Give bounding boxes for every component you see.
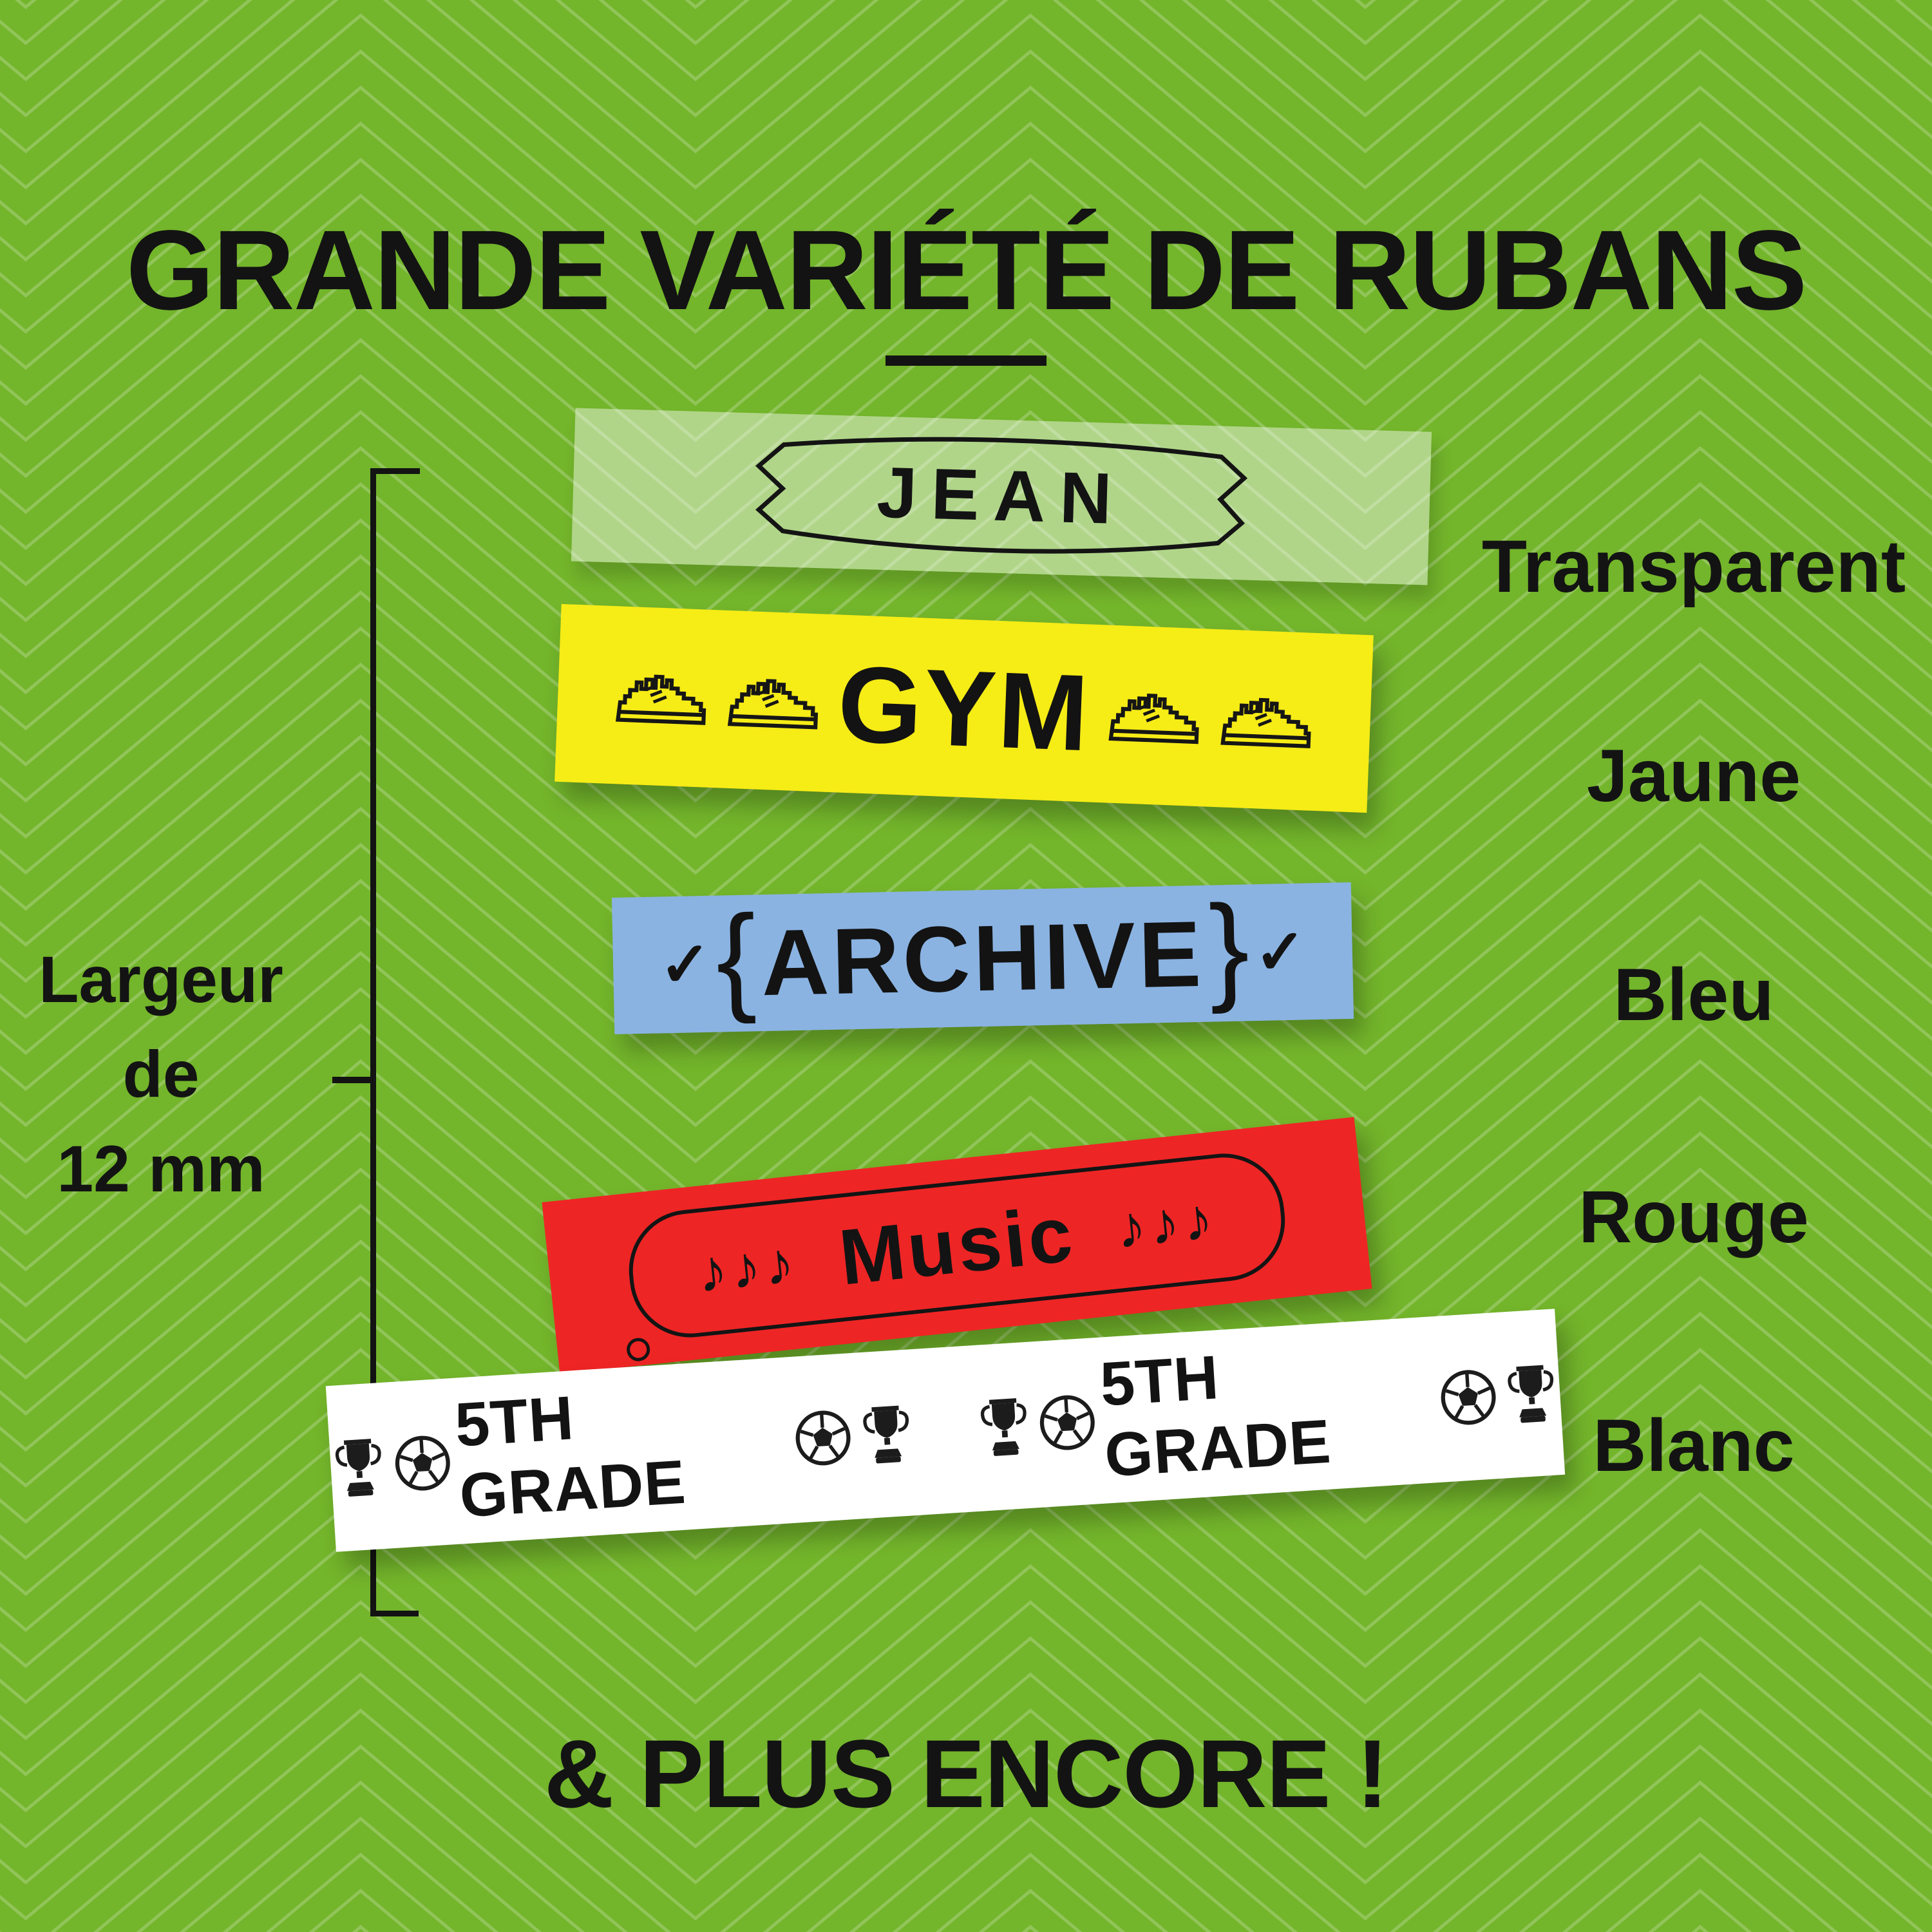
width-annotation: Largeur de 12 mm <box>19 933 303 1217</box>
width-bracket-top-cap <box>370 468 420 474</box>
tape-sample-jaune: GYM <box>554 604 1374 813</box>
sneaker-icon <box>1106 683 1204 749</box>
soccer-ball-icon <box>793 1405 854 1471</box>
banner-ribbon-frame: JEAN <box>716 421 1287 572</box>
tape-text-grade: 5TH GRADE <box>1098 1329 1437 1492</box>
page-title: GRANDE VARIÉTÉ DE RUBANS <box>0 206 1932 335</box>
tape-text-music: Music <box>835 1188 1079 1302</box>
sneaker-icon <box>725 668 823 734</box>
tape-text-grade: 5TH GRADE <box>453 1370 793 1532</box>
sneaker-icon <box>1218 687 1316 753</box>
tape-sample-bleu: ✓ { ARCHIVE } ✓ <box>612 882 1354 1034</box>
width-annotation-line1: Largeur <box>19 933 303 1027</box>
music-notes-icon: ♪♪♪ <box>694 1229 801 1307</box>
trophy-icon <box>857 1397 917 1471</box>
tape-text-jean: JEAN <box>876 452 1127 540</box>
color-label-bleu: Bleu <box>1468 953 1919 1037</box>
music-notes-icon: ♪♪♪ <box>1113 1184 1220 1262</box>
width-bracket-mid-tick <box>332 1077 370 1083</box>
width-annotation-line2: de <box>19 1027 303 1122</box>
group-gap <box>922 1426 969 1435</box>
tape-text-archive: ARCHIVE <box>761 900 1206 1016</box>
checkmark-icon: ✓ <box>1254 915 1307 989</box>
color-label-jaune: Jaune <box>1468 734 1919 818</box>
color-label-transparent: Transparent <box>1468 525 1919 609</box>
footer-tagline: & PLUS ENCORE ! <box>0 1718 1932 1830</box>
soccer-ball-icon <box>392 1430 453 1496</box>
sneaker-icon <box>613 664 711 730</box>
width-annotation-line3: 12 mm <box>19 1122 303 1217</box>
trophy-icon <box>328 1430 389 1504</box>
tape-sample-transparent: JEAN <box>571 408 1432 585</box>
grade-group: 5TH GRADE <box>327 1361 919 1540</box>
soccer-ball-icon <box>1037 1389 1098 1455</box>
trophy-icon <box>974 1390 1034 1464</box>
tape-text-gym: GYM <box>836 641 1093 775</box>
color-label-rouge: Rouge <box>1468 1175 1919 1259</box>
color-label-blanc: Blanc <box>1468 1404 1919 1488</box>
brace-open: { <box>715 898 757 1018</box>
checkmark-icon: ✓ <box>659 928 712 1001</box>
width-bracket-bottom-cap <box>370 1611 419 1616</box>
brace-close: } <box>1208 887 1251 1008</box>
bubble-dot <box>625 1337 651 1363</box>
title-underline-dash <box>885 355 1046 366</box>
